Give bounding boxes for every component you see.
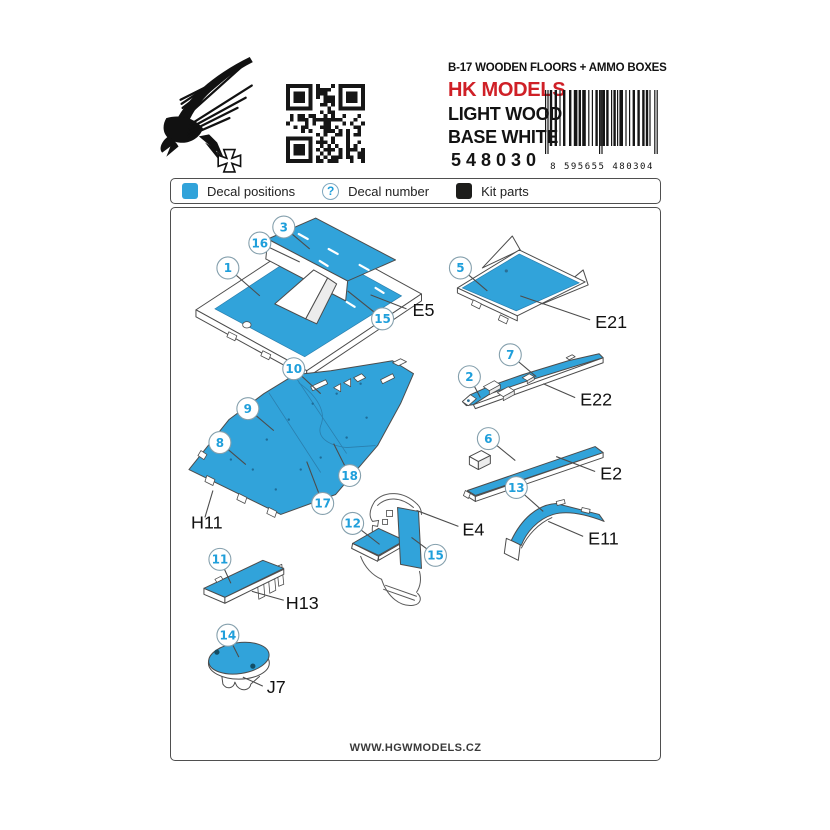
svg-text:12: 12: [344, 517, 361, 531]
svg-text:17: 17: [314, 497, 331, 511]
product-title: B-17 WOODEN FLOORS + AMMO BOXES: [448, 62, 663, 74]
diagram-canvas: E5 E21 E22 E2 E11 H11 E4 H13 J7 3: [171, 208, 660, 760]
barcode-bars: [545, 90, 659, 156]
svg-text:13: 13: [508, 481, 525, 495]
part-label-e2: E2: [600, 464, 622, 484]
barcode-digits: 8 595655 480304: [545, 162, 659, 172]
svg-text:11: 11: [212, 553, 229, 567]
part-j7-drawing: [207, 639, 272, 690]
decal-positions-swatch: [182, 183, 198, 199]
legend-decal-positions-label: Decal positions: [207, 184, 295, 199]
question-circle-icon: ?: [322, 183, 339, 200]
svg-text:1: 1: [224, 261, 232, 275]
svg-text:3: 3: [280, 220, 288, 234]
part-e4-drawing: [352, 494, 422, 606]
instruction-sheet: B-17 WOODEN FLOORS + AMMO BOXES HK MODEL…: [0, 0, 830, 830]
website-url: WWW.HGWMODELS.CZ: [171, 742, 660, 754]
barcode: 8 595655 480304: [545, 90, 659, 172]
hgw-eagle-logo: [156, 55, 258, 173]
kit-parts-swatch: [456, 183, 472, 199]
svg-text:7: 7: [506, 348, 514, 362]
svg-text:14: 14: [220, 628, 237, 642]
part-label-j7: J7: [267, 677, 286, 697]
legend-kit-parts-label: Kit parts: [481, 184, 529, 199]
part-label-e11: E11: [588, 528, 619, 548]
svg-text:15: 15: [427, 549, 444, 563]
diagram-frame: E5 E21 E22 E2 E11 H11 E4 H13 J7 3: [170, 207, 661, 761]
callout-13: 13: [505, 477, 543, 512]
part-e21-drawing: [457, 236, 588, 324]
svg-text:8: 8: [216, 436, 224, 450]
legend-decal-number-label: Decal number: [348, 184, 429, 199]
svg-text:18: 18: [341, 469, 358, 483]
svg-text:2: 2: [465, 370, 473, 384]
part-e2-drawing: [463, 447, 603, 502]
callout-7: 7: [499, 344, 536, 377]
svg-text:5: 5: [456, 261, 464, 275]
part-label-e5: E5: [413, 300, 435, 320]
part-label-e4: E4: [462, 519, 484, 539]
qr-code: [286, 84, 365, 163]
svg-text:9: 9: [244, 402, 252, 416]
legend-bar: Decal positions ? Decal number Kit parts: [170, 178, 661, 204]
part-label-e22: E22: [580, 390, 612, 410]
svg-text:15: 15: [374, 312, 391, 326]
part-label-h11: H11: [191, 512, 223, 532]
part-label-e21: E21: [595, 312, 627, 332]
part-e5-drawing: [196, 218, 422, 378]
svg-text:10: 10: [285, 362, 302, 376]
svg-text:16: 16: [251, 236, 268, 250]
part-label-h13: H13: [286, 593, 319, 613]
svg-text:6: 6: [484, 432, 492, 446]
